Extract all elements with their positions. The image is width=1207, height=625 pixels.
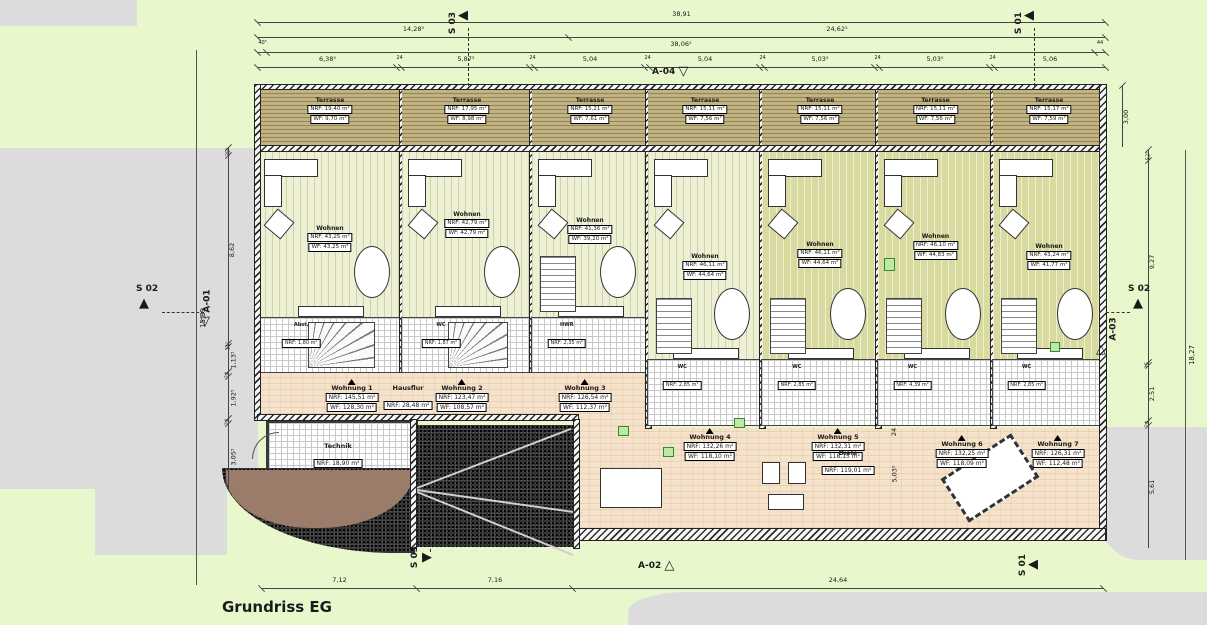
marker-label: S 01 <box>1014 12 1024 34</box>
dim-label: 40⁵ <box>258 41 266 46</box>
room-name: Wohnen <box>913 233 958 240</box>
room-wf: WF: 42,79 m² <box>446 229 489 238</box>
stairs <box>1001 298 1037 354</box>
room-name: Technik <box>314 443 363 450</box>
room-nrf: NRF: 2,35 m² <box>548 339 587 348</box>
room-name: WC <box>778 364 817 371</box>
dining-table <box>600 246 636 298</box>
electrical-marker <box>618 426 629 436</box>
section-arrow-s03-top: ◀ <box>458 8 468 23</box>
stairs <box>656 298 692 354</box>
dim-label: 5,04 <box>583 56 597 63</box>
dimension-row: 7,127,1624,64 <box>262 578 1103 589</box>
room-nrf: NRF: 41,36 m² <box>567 225 612 234</box>
apartment-wf: WF: 118,09 m² <box>937 459 987 468</box>
hall-chair <box>788 462 806 484</box>
sofa <box>884 175 902 207</box>
armchair <box>408 209 439 240</box>
apartment-wf: WF: 128,30 m² <box>327 403 377 412</box>
room-name: Terrasse <box>1026 97 1071 104</box>
kitchen-counter <box>435 306 501 317</box>
utility-rooms: WC NRF: 4,39 m² <box>878 360 993 425</box>
street-left <box>0 148 258 489</box>
room-nrf: NRF: 46,11 m² <box>797 249 842 258</box>
electrical-marker <box>663 447 674 457</box>
room-nrf: NRF: 46,10 m² <box>913 241 958 250</box>
apartment-label: Wohnung 2 NRF: 123,47 m² WF: 108,57 m² <box>436 379 489 412</box>
dimension-segment: 2,51 <box>1148 366 1159 421</box>
utility-label: HWR NRF: 2,35 m² <box>548 322 587 348</box>
section-line-s02-left <box>162 312 204 313</box>
room-name: Terrasse <box>797 97 842 104</box>
marker-label: S 03 <box>410 546 420 568</box>
driveway-ramp <box>415 425 575 547</box>
apartment-label: Wohnung 4 NRF: 132,26 m² WF: 118,10 m² <box>684 428 737 461</box>
room-name: HWR <box>548 322 587 329</box>
triangle-down-icon: ▽ <box>678 64 688 79</box>
room-name: Wohnen <box>307 225 352 232</box>
dim-label: 24,64 <box>829 577 848 584</box>
room-name: Wohnen <box>797 241 842 248</box>
dim-right-total: 18,27 <box>1185 150 1186 560</box>
room-name: Diele <box>822 450 875 457</box>
armchair <box>538 209 569 240</box>
dimension-segment: 24,62⁵ <box>569 27 1105 38</box>
room-nrf: NRF: 2,85 m² <box>1007 381 1046 390</box>
utility-label: Abst. NRF: 1,80 m² <box>282 322 321 348</box>
street-bottom <box>628 592 1207 625</box>
detail-marker-a03: A-03 <box>1109 317 1119 340</box>
living-label: Wohnen NRF: 42,79 m² WF: 42,79 m² <box>444 211 489 238</box>
room-wf: WF: 8,98 m² <box>447 115 486 124</box>
triangle-up-icon: ▲ <box>139 296 149 311</box>
sofa <box>408 175 426 207</box>
drawing-title: Grundriss EG <box>222 598 332 616</box>
room-nrf: NRF: 1,87 m² <box>422 339 461 348</box>
room-nrf: NRF: 42,79 m² <box>444 219 489 228</box>
armchair <box>768 209 799 240</box>
room-wf: WF: 41,77 m² <box>1028 261 1071 270</box>
apartment-wf: WF: 112,37 m² <box>560 403 610 412</box>
terrace: Terrasse NRF: 15,11 m² WF: 7,56 m² <box>878 89 993 146</box>
room-wf: WF: 7,61 m² <box>570 115 609 124</box>
apartment-label: Wohnung 6 NRF: 132,25 m² WF: 118,09 m² <box>936 435 989 468</box>
section-line-s02-right <box>1106 312 1130 313</box>
triangle-up-icon: △ <box>1096 342 1106 357</box>
sofa <box>999 175 1017 207</box>
dining-table <box>945 288 981 340</box>
apartment-name: Wohnung 6 <box>936 441 989 448</box>
dim-label: 5,61 <box>1149 480 1156 494</box>
room-name: Terrasse <box>307 97 352 104</box>
terrace-label: Terrasse NRF: 15,21 m² WF: 7,61 m² <box>567 97 612 124</box>
dimension-segment: 7,12 <box>262 578 417 589</box>
dim-label: 44 <box>1097 41 1103 46</box>
dim-label: 24,62⁵ <box>826 26 847 33</box>
section-arrow-s03-bottom: ▶ <box>422 550 432 565</box>
room-name: Terrasse <box>444 97 489 104</box>
terrace: Terrasse NRF: 17,95 m² WF: 8,98 m² <box>402 89 532 146</box>
room-nrf: NRF: 43,25 m² <box>307 233 352 242</box>
room-name: WC <box>1007 364 1046 371</box>
section-marker-s02-right: S 02 <box>1128 284 1150 294</box>
dim-label: 5,87⁵ <box>457 56 474 63</box>
room-wf: WF: 44,64 m² <box>684 271 727 280</box>
apartment-nrf: NRF: 123,47 m² <box>436 393 489 402</box>
apartment-name: Wohnung 7 <box>1032 441 1085 448</box>
dim-label: 38,91 <box>672 11 691 18</box>
dim-label: 3,00 <box>1123 109 1130 123</box>
living-label: Wohnen NRF: 43,24 m² WF: 41,77 m² <box>1026 243 1071 270</box>
living-room: Wohnen NRF: 43,25 m² WF: 43,25 m² <box>258 151 402 318</box>
sofa <box>264 175 282 207</box>
terrace: Terrasse NRF: 15,11 m² WF: 7,56 m² <box>762 89 878 146</box>
terrace-label: Terrasse NRF: 19,40 m² WF: 9,70 m² <box>307 97 352 124</box>
room-name: WC <box>663 364 702 371</box>
detail-marker-a02: A-02 △ <box>638 558 674 573</box>
room-wf: WF: 7,59 m² <box>1029 115 1068 124</box>
utility-label: WC NRF: 2,85 m² <box>663 364 702 390</box>
section-arrow-s01-top: ◀ <box>1024 8 1034 23</box>
dimension-segment: 38,91 <box>258 12 1105 23</box>
dim-label: 5,06 <box>1043 56 1057 63</box>
room-nrf: NRF: 43,24 m² <box>1026 251 1071 260</box>
living-room: Wohnen NRF: 42,79 m² WF: 42,79 m² <box>402 151 532 318</box>
section-arrow-s01-bottom: ◀ <box>1028 557 1038 572</box>
apartment-nrf: NRF: 126,54 m² <box>559 393 612 402</box>
apartment-nrf: NRF: 132,26 m² <box>684 442 737 451</box>
dimension-segment: 5,04 <box>535 57 645 68</box>
room-nrf: NRF: 19,40 m² <box>307 105 352 114</box>
stairs <box>886 298 922 354</box>
dim-label: 7,16 <box>488 577 502 584</box>
wall-corridor-bottom <box>258 415 578 420</box>
marker-label: S 03 <box>448 12 458 34</box>
apartment-wf: WF: 108,57 m² <box>437 403 487 412</box>
section-marker-s03-top: S 03 <box>448 12 458 34</box>
armchair <box>264 209 295 240</box>
apartment-wf: WF: 112,48 m² <box>1033 459 1083 468</box>
triangle-right-icon: ▶ <box>422 550 432 565</box>
room-name: Wohnen <box>444 211 489 218</box>
dim-label: 6,38⁵ <box>319 56 336 63</box>
diele-label: Diele NRF: 119,01 m² <box>822 450 875 476</box>
room-nrf: NRF: 18,90 m² <box>314 459 363 468</box>
hall-chair <box>762 462 780 484</box>
wall-ramp-left <box>411 420 416 548</box>
dining-table <box>714 288 750 340</box>
dimension-segment: 5,61 <box>1148 426 1159 548</box>
room-wf: WF: 44,83 m² <box>914 251 957 260</box>
section-marker-s01-top: S 01 <box>1014 12 1024 34</box>
pavement-bottom-left <box>95 487 227 555</box>
apartment-nrf: NRF: 145,51 m² <box>326 393 379 402</box>
dimension-column: 3,00 <box>1122 86 1133 147</box>
room-nrf: NRF: 2,85 m² <box>663 381 702 390</box>
dim-left-total: 15,89 <box>196 50 197 585</box>
dimension-segment: 5,03⁵ <box>880 57 990 68</box>
dining-table <box>830 288 866 340</box>
marker-label: S 02 <box>136 284 158 294</box>
dimension-row: 14,28⁵24,62⁵ <box>258 27 1105 38</box>
dimension-segment: 5,87⁵ <box>402 57 530 68</box>
dim-label: 8,62 <box>229 243 236 257</box>
room-wf: WF: 9,70 m² <box>310 115 349 124</box>
dim-label: 5,03⁵ <box>926 56 943 63</box>
dim-label: 18,27 <box>1188 345 1196 365</box>
living-label: Wohnen NRF: 43,25 m² WF: 43,25 m² <box>307 225 352 252</box>
room-name: WC <box>422 322 461 329</box>
dining-table <box>354 246 390 298</box>
dimension-segment: 8,62 <box>228 156 239 344</box>
dimension-segment: 3,05⁵ <box>228 424 239 490</box>
room-name: Terrasse <box>682 97 727 104</box>
dimension-column: 52⁵9,27152,51245,61 <box>1148 150 1159 548</box>
room-wf: WF: 7,56 m² <box>685 115 724 124</box>
sofa <box>768 175 786 207</box>
room-nrf: NRF: 15,11 m² <box>913 105 958 114</box>
marker-label: A-03 <box>1109 317 1119 340</box>
marker-label: A-02 <box>638 561 661 571</box>
room-nrf: NRF: 28,48 m² <box>384 401 433 410</box>
terrace-label: Terrasse NRF: 15,11 m² WF: 7,56 m² <box>797 97 842 124</box>
wall-ramp-right <box>574 420 579 548</box>
dimension-segment: 5,06 <box>995 57 1105 68</box>
room-name: Hausflur <box>384 385 433 392</box>
triangle-up-icon: △ <box>664 558 674 573</box>
dim-label: 38,06⁵ <box>670 41 691 48</box>
section-marker-s02-left: S 02 <box>136 284 158 294</box>
triangle-down-icon: ▽ <box>200 314 210 329</box>
terrace: Terrasse NRF: 15,21 m² WF: 7,61 m² <box>532 89 648 146</box>
kitchen-counter <box>298 306 364 317</box>
apartment-name: Wohnung 4 <box>684 434 737 441</box>
room-wf: WF: 43,25 m² <box>309 243 352 252</box>
room-name: Wohnen <box>682 253 727 260</box>
apartment-nrf: NRF: 126,31 m² <box>1032 449 1085 458</box>
sofa <box>654 175 672 207</box>
hausflur-label: Hausflur NRF: 28,48 m² <box>384 385 433 411</box>
room-name: Terrasse <box>567 97 612 104</box>
apartment-label: Wohnung 7 NRF: 126,31 m² WF: 112,48 m² <box>1032 435 1085 468</box>
dim-hall-503: 5,03⁵ <box>891 465 899 482</box>
apartment-label: Wohnung 1 NRF: 145,51 m² WF: 128,30 m² <box>326 379 379 412</box>
room-name: Terrasse <box>913 97 958 104</box>
apartment-name: Wohnung 3 <box>559 385 612 392</box>
detail-arrow-a01: ▽ <box>200 314 210 329</box>
dim-label: 14,28⁵ <box>403 26 424 33</box>
terrace-label: Terrasse NRF: 17,95 m² WF: 8,98 m² <box>444 97 489 124</box>
electrical-marker <box>884 258 895 271</box>
utility-rooms: HWR NRF: 2,35 m² <box>532 318 648 372</box>
triangle-up-icon: ▲ <box>1133 296 1143 311</box>
room-name: Abst. <box>282 322 321 329</box>
dimension-segment: 7,16 <box>417 578 573 589</box>
sofa <box>538 175 556 207</box>
electrical-marker <box>1050 342 1060 352</box>
utility-rooms: WC NRF: 2,85 m² <box>762 360 878 425</box>
living-label: Wohnen NRF: 46,10 m² WF: 44,83 m² <box>913 233 958 260</box>
dimension-segment: 38,06⁵ <box>267 42 1095 53</box>
room-name: Wohnen <box>567 217 612 224</box>
dimension-segment: 44 <box>1095 42 1105 53</box>
dim-label: 5,03⁵ <box>811 56 828 63</box>
room-nrf: NRF: 17,95 m² <box>444 105 489 114</box>
room-nrf: NRF: 46,11 m² <box>682 261 727 270</box>
dimension-segment: 1,92⁵ <box>228 377 239 419</box>
dining-table <box>1057 288 1093 340</box>
dimension-segment: 5,03⁵ <box>765 57 875 68</box>
room-name: WC <box>893 364 932 371</box>
room-nrf: NRF: 2,85 m² <box>778 381 817 390</box>
dining-table <box>484 246 520 298</box>
hall-side-table <box>768 494 804 510</box>
room-nrf: NRF: 4,39 m² <box>893 381 932 390</box>
pavement-top-left <box>0 0 137 26</box>
room-nrf: NRF: 15,17 m² <box>1026 105 1071 114</box>
dim-label: 1,13⁵ <box>230 351 237 368</box>
utility-label: WC NRF: 2,85 m² <box>778 364 817 390</box>
electrical-marker <box>734 418 745 428</box>
utility-rooms: WC NRF: 2,85 m² <box>993 360 1105 425</box>
technik-label: Technik NRF: 18,90 m² <box>314 443 363 469</box>
triangle-left-icon: ◀ <box>1028 557 1038 572</box>
terrace-label: Terrasse NRF: 15,17 m² WF: 7,59 m² <box>1026 97 1071 124</box>
dim-label: 7,12 <box>332 577 346 584</box>
hall-table <box>600 468 662 508</box>
wall-terrace-top <box>258 85 1105 89</box>
dimension-segment: 6,38⁵ <box>258 57 397 68</box>
armchair <box>884 209 915 240</box>
dim-hall-24: 24 <box>890 428 898 436</box>
living-label: Wohnen NRF: 41,36 m² WF: 39,20 m² <box>567 217 612 244</box>
apartment-label: Wohnung 3 NRF: 126,54 m² WF: 112,37 m² <box>559 379 612 412</box>
utility-label: WC NRF: 2,85 m² <box>1007 364 1046 390</box>
detail-marker-a04: A-04 ▽ <box>652 64 688 79</box>
room-wf: WF: 7,56 m² <box>800 115 839 124</box>
dimension-segment: 9,27 <box>1148 161 1159 363</box>
detail-arrow-a03: △ <box>1096 342 1106 357</box>
living-label: Wohnen NRF: 46,11 m² WF: 44,64 m² <box>682 253 727 280</box>
section-marker-s01-bottom: S 01 <box>1018 554 1028 576</box>
triangle-left-icon: ◀ <box>1024 8 1034 23</box>
terrace-label: Terrasse NRF: 15,11 m² WF: 7,56 m² <box>913 97 958 124</box>
section-arrow-s02-left: ▲ <box>139 296 149 311</box>
detail-marker-a01: A-01 <box>203 289 213 312</box>
marker-label: S 02 <box>1128 284 1150 294</box>
living-label: Wohnen NRF: 46,11 m² WF: 44,64 m² <box>797 241 842 268</box>
dimension-segment: 14,28⁵ <box>258 27 569 38</box>
dim-label: 1,92⁵ <box>230 389 237 406</box>
terrace-label: Terrasse NRF: 15,11 m² WF: 7,56 m² <box>682 97 727 124</box>
utility-label: WC NRF: 1,87 m² <box>422 322 461 348</box>
armchair <box>654 209 685 240</box>
apartment-name: Wohnung 1 <box>326 385 379 392</box>
room-nrf: NRF: 15,11 m² <box>682 105 727 114</box>
dimension-segment: 3,00 <box>1122 86 1133 147</box>
stairs <box>770 298 806 354</box>
terrace: Terrasse NRF: 19,40 m² WF: 9,70 m² <box>258 89 402 146</box>
wall-hall-bottom <box>578 529 1105 540</box>
stairs <box>540 256 576 312</box>
floor-plan-canvas: Terrasse NRF: 19,40 m² WF: 9,70 m² Wohne… <box>0 0 1207 625</box>
triangle-left-icon: ◀ <box>458 8 468 23</box>
dim-label: 2,51 <box>1149 386 1156 400</box>
dimension-column: 35⁵8,6211⁵1,13⁵241,92⁵243,05⁵ <box>228 148 239 490</box>
room-wf: WF: 39,20 m² <box>569 235 612 244</box>
terrace: Terrasse NRF: 15,17 m² WF: 7,59 m² <box>993 89 1105 146</box>
marker-label: S 01 <box>1018 554 1028 576</box>
marker-label: A-04 <box>652 67 675 77</box>
room-nrf: NRF: 15,21 m² <box>567 105 612 114</box>
dim-label: 5,04 <box>698 56 712 63</box>
room-nrf: NRF: 119,01 m² <box>822 466 875 475</box>
dim-label: 3,05⁵ <box>230 448 237 465</box>
armchair <box>999 209 1030 240</box>
dimension-row: 40⁵38,06⁵44 <box>258 42 1105 53</box>
room-wf: WF: 44,64 m² <box>799 259 842 268</box>
room-nrf: NRF: 15,11 m² <box>797 105 842 114</box>
room-name: Wohnen <box>1026 243 1071 250</box>
section-marker-s03-bottom: S 03 <box>410 546 420 568</box>
apartment-name: Wohnung 5 <box>812 434 865 441</box>
utility-rooms: WC NRF: 2,85 m² <box>648 360 762 425</box>
room-wf: WF: 7,56 m² <box>916 115 955 124</box>
wall-terrace-living <box>258 146 1105 151</box>
section-arrow-s02-right: ▲ <box>1133 296 1143 311</box>
dimension-segment: 24,64 <box>573 578 1103 589</box>
terrace: Terrasse NRF: 15,11 m² WF: 7,56 m² <box>648 89 762 146</box>
wall-left <box>255 85 260 420</box>
utility-label: WC NRF: 4,39 m² <box>893 364 932 390</box>
apartment-wf: WF: 118,10 m² <box>685 452 735 461</box>
marker-label: A-01 <box>203 289 213 312</box>
dim-label: 9,27 <box>1149 255 1156 269</box>
dimension-row: 38,91 <box>258 12 1105 23</box>
apartment-name: Wohnung 2 <box>436 385 489 392</box>
apartment-nrf: NRF: 132,25 m² <box>936 449 989 458</box>
room-nrf: NRF: 1,80 m² <box>282 339 321 348</box>
